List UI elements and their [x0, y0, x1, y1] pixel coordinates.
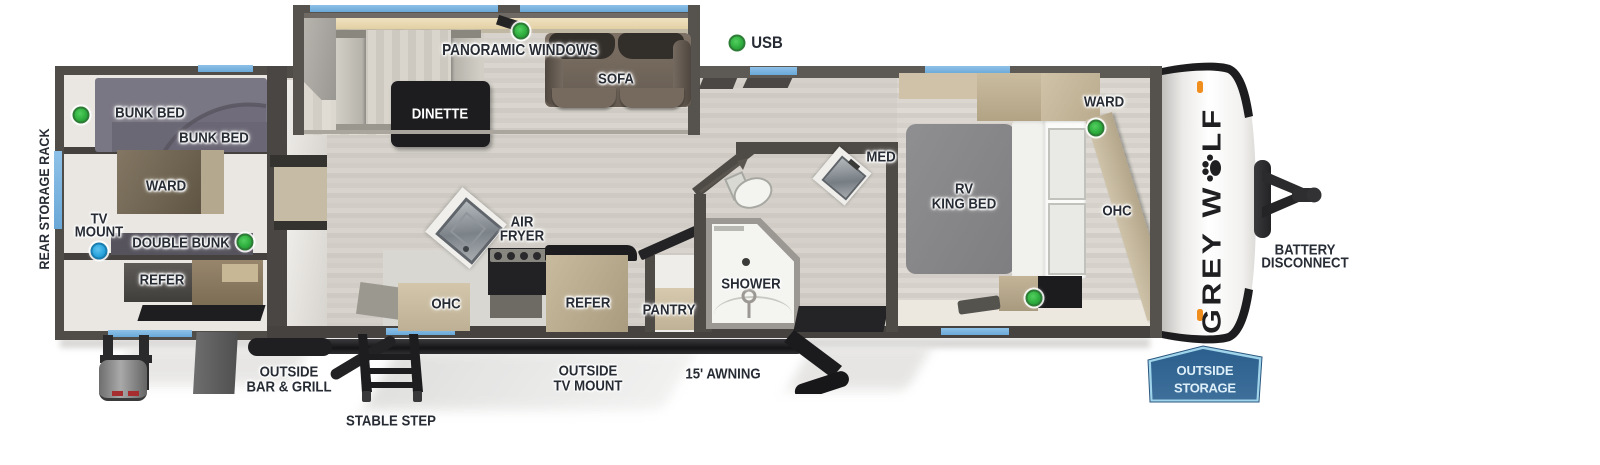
svg-text:STORAGE: STORAGE	[1174, 381, 1236, 396]
svg-text:OUTSIDE: OUTSIDE	[1177, 363, 1234, 378]
